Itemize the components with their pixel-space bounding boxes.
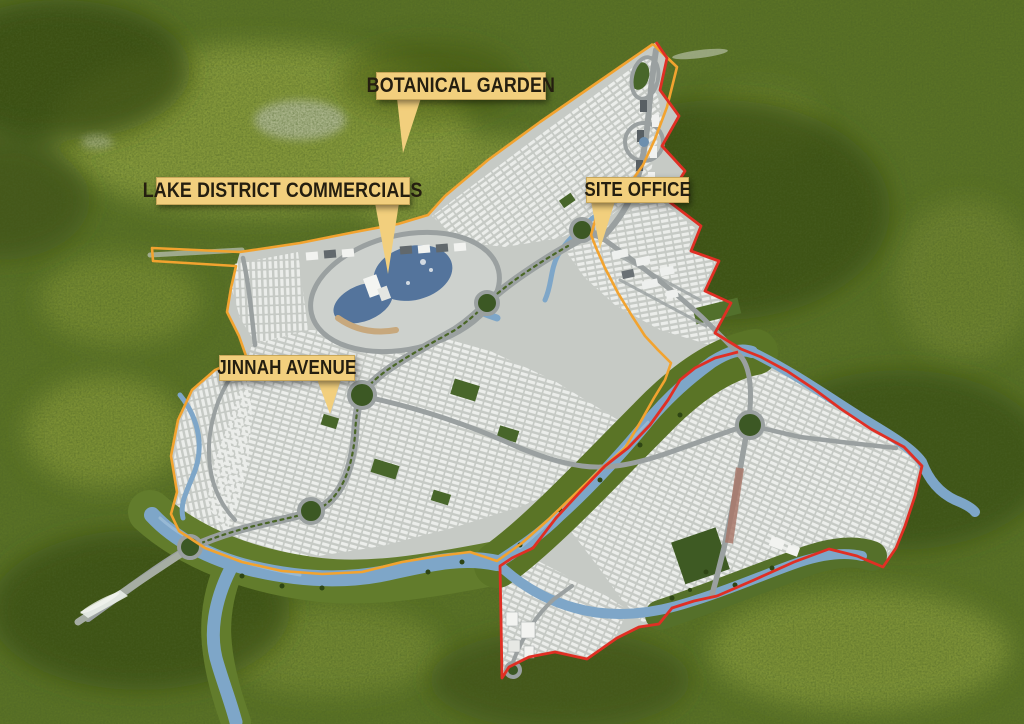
map-canvas — [0, 0, 1024, 724]
callout-jinnah-avenue-label: JINNAH AVENUE — [217, 357, 356, 380]
callout-site-office-label: SITE OFFICE — [584, 179, 691, 202]
callout-lake-district-commercials: LAKE DISTRICT COMMERCIALS — [156, 177, 410, 205]
callout-jinnah-avenue: JINNAH AVENUE — [219, 355, 355, 381]
roundabout-jinnah — [349, 382, 375, 408]
callout-botanical-garden: BOTANICAL GARDEN — [376, 72, 546, 100]
callout-lake-district-commercials-label: LAKE DISTRICT COMMERCIALS — [143, 179, 423, 203]
callout-site-office: SITE OFFICE — [586, 177, 689, 203]
roundabout-southeast — [737, 412, 763, 438]
roundabout-west — [299, 499, 323, 523]
callout-botanical-garden-label: BOTANICAL GARDEN — [367, 74, 556, 98]
masterplan-map-image: BOTANICAL GARDEN LAKE DISTRICT COMMERCIA… — [0, 0, 1024, 724]
roundabout-site-office — [571, 219, 593, 241]
roundabout-lake-east — [476, 292, 498, 314]
